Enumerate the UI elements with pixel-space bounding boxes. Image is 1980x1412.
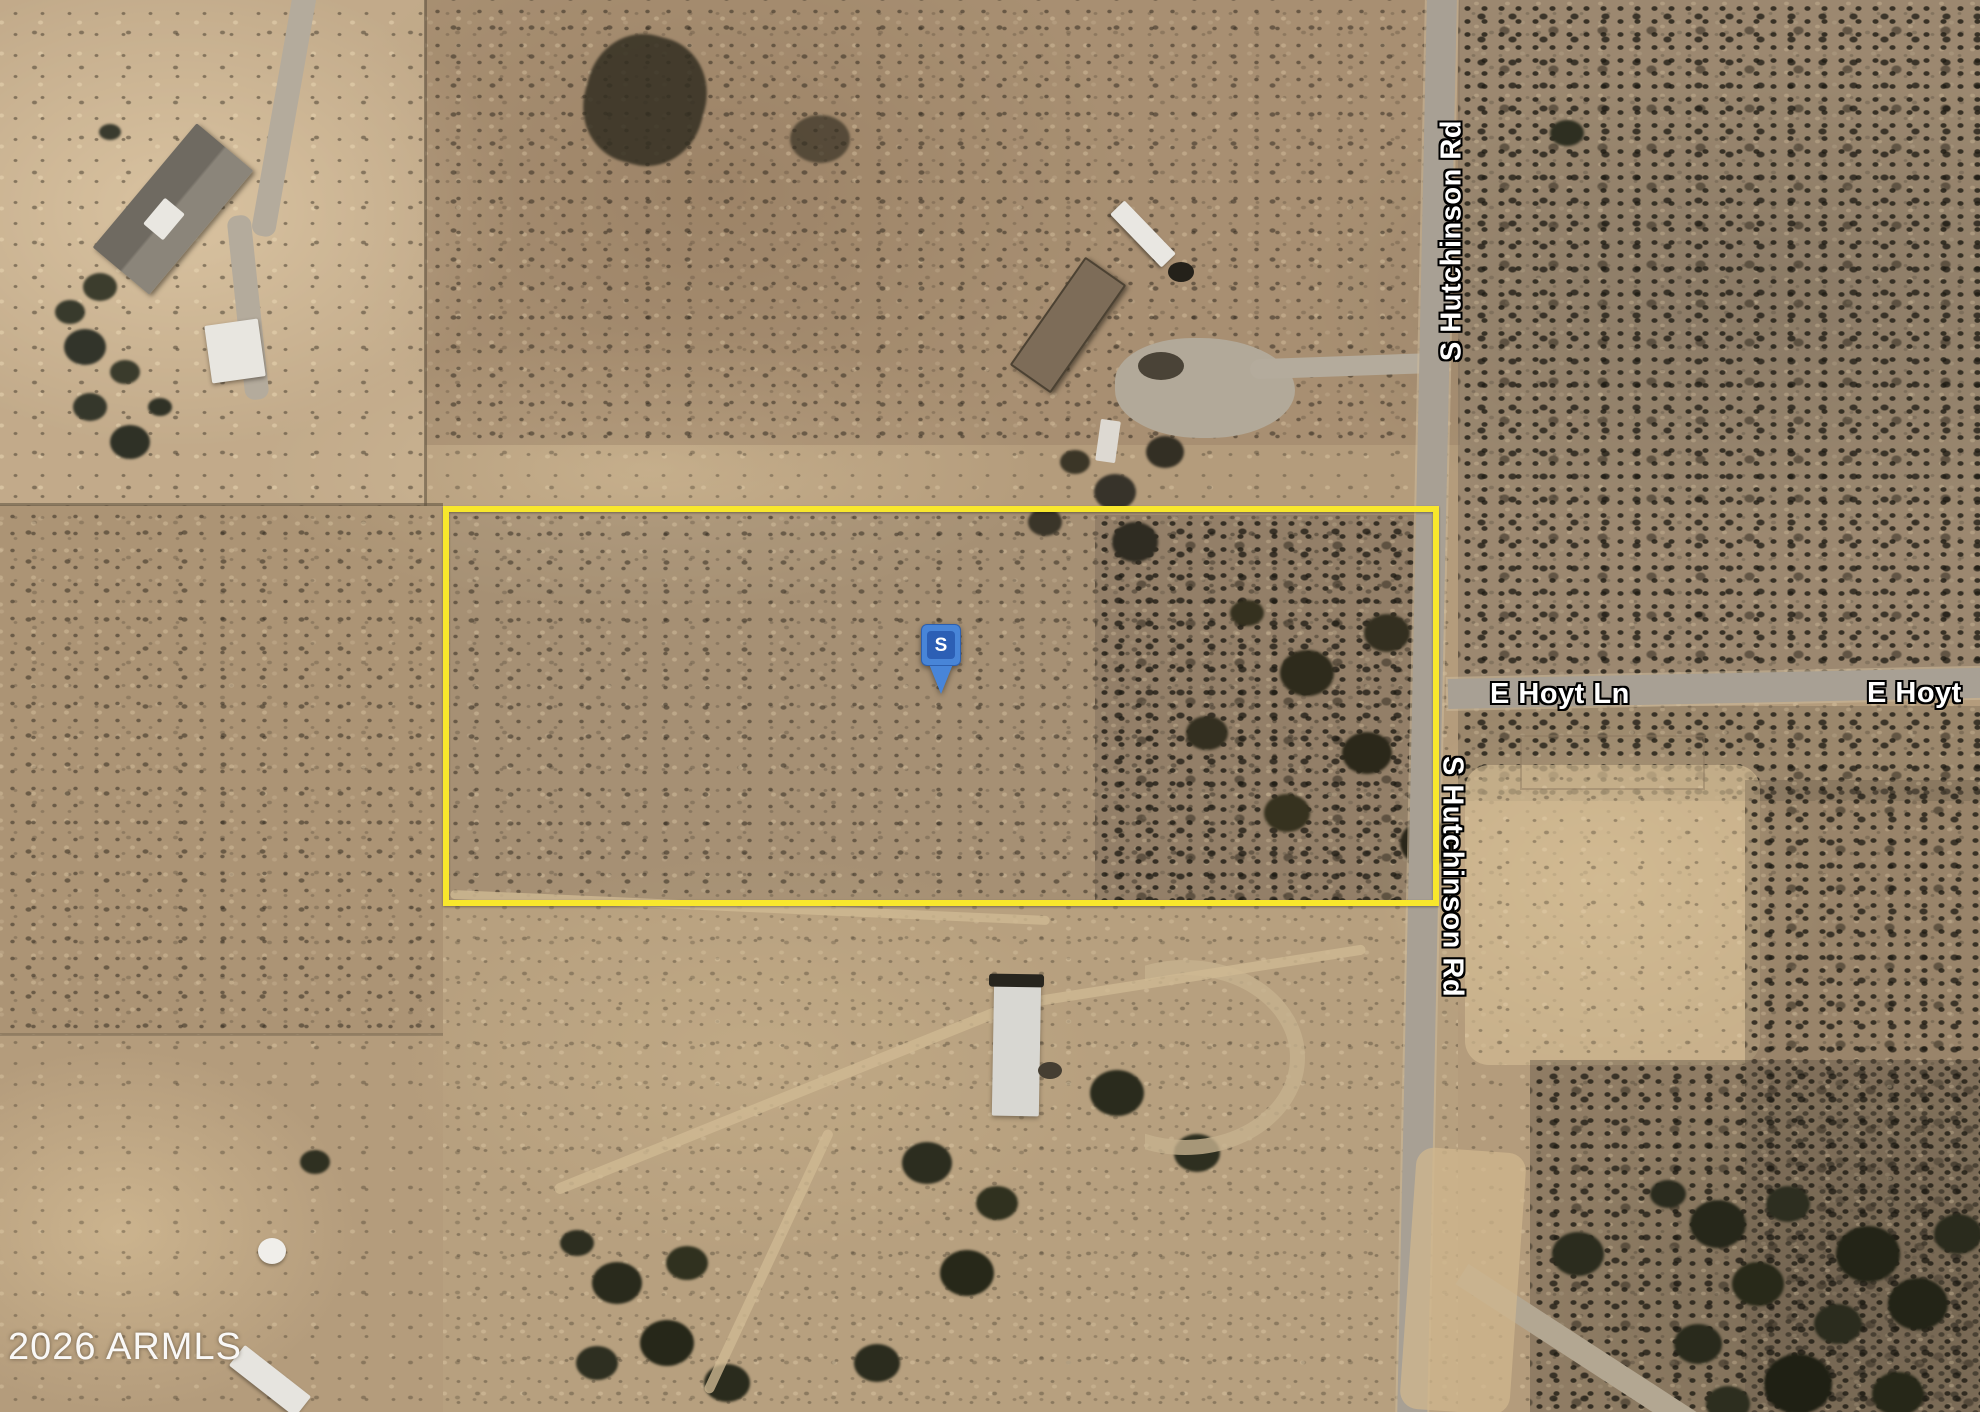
driveway-island-bush	[1138, 352, 1184, 380]
road-label-hutchinson-south: S Hutchinson Rd	[1436, 737, 1469, 1017]
building-topleft-shed	[204, 319, 266, 384]
tree-cluster-topleft	[55, 300, 85, 324]
tree-cluster-right	[1550, 120, 1584, 146]
building-bottomcenter-dark-blob	[1038, 1062, 1062, 1079]
terrain-left-field	[0, 505, 443, 1035]
tree-cluster-belowparcel	[560, 1230, 594, 1256]
tree-blob-topcenter-2	[790, 115, 850, 163]
structure-white-tank	[258, 1238, 286, 1264]
fence-line-horizontal	[0, 503, 443, 506]
satellite-map[interactable]: S S Hutchinson Rd S Hutchinson Rd E Hoyt…	[0, 0, 1980, 1412]
property-boundary	[443, 506, 1439, 906]
terrain-right-brush	[1458, 0, 1980, 695]
tree-cluster-bottomright	[1650, 1180, 1686, 1208]
mls-watermark: 2026 ARMLS	[8, 1326, 242, 1369]
road-label-hoyt: E Hoyt Ln	[1490, 678, 1630, 711]
marker-tail	[929, 664, 953, 694]
building-bottomcenter	[992, 978, 1041, 1117]
building-bottomcenter-shadow	[989, 974, 1044, 988]
fence-line-lower	[0, 1033, 443, 1036]
terrain-topleft-sand	[0, 0, 425, 505]
tree-cluster-midcenter	[1060, 450, 1090, 474]
road-label-hutchinson-north: S Hutchinson Rd	[1436, 101, 1469, 381]
vehicle-dark-car	[1168, 262, 1194, 282]
terrain-cleared-lot	[1465, 765, 1760, 1065]
property-marker[interactable]: S	[921, 624, 961, 698]
driveway-topcenter-apron	[1115, 338, 1295, 438]
terrain-below-parcel	[443, 906, 1458, 1412]
faint-lot-outline	[1520, 735, 1705, 790]
fence-line-vertical	[424, 0, 427, 506]
road-label-hoyt-right: E Hoyt	[1867, 677, 1962, 710]
tree-cluster-bottomleft	[300, 1150, 330, 1174]
terrain-topcenter-field	[425, 0, 1460, 445]
marker-letter: S	[927, 631, 955, 659]
road-dirt-fork-south	[1399, 1146, 1527, 1412]
